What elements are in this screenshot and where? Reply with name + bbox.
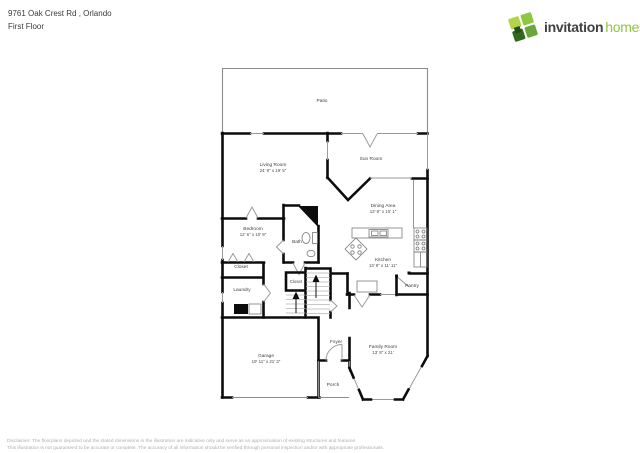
disclaimer: Disclaimer: The floorplans depicted and … (7, 438, 384, 452)
room-label-laundry: Laundry (233, 287, 251, 293)
room-dims-living-room: 24' 8" x 19' 5" (260, 168, 287, 173)
room-dims-family-room: 13' 8" x 21' (372, 350, 393, 355)
bedroom-bath-walls (222, 205, 319, 318)
kitchen-fixtures (345, 180, 427, 292)
interior-walls-upper (328, 133, 428, 200)
room-label-closet-small: Closet (290, 279, 303, 284)
room-label-pantry: Pantry (405, 283, 419, 289)
room-dims-kitchen: 13' 9" x 11' 11" (369, 263, 398, 268)
room-dims-garage: 19' 11" x 21' 3" (252, 359, 281, 364)
room-label-porch: Porch (327, 382, 340, 388)
stairs-area (286, 268, 348, 318)
floor-plan: Patio Living Room 24' 8" x 19' 5" Sun Ro… (0, 0, 640, 453)
bath-fixtures (302, 233, 318, 257)
room-label-bath: Bath (292, 239, 302, 245)
room-label-closet: Closet (234, 264, 248, 270)
room-dims-bedroom: 12' 6" x 10' 9" (240, 232, 267, 237)
room-label-foyer: Foyer (330, 339, 343, 345)
porch-outline (319, 361, 350, 398)
floorplan-page: 9761 Oak Crest Rd , Orlando First Floor … (0, 0, 640, 453)
room-label-sun-room: Sun Room (360, 156, 383, 162)
disclaimer-line2: This illustration is not guaranteed to b… (7, 445, 384, 452)
utility-units (234, 304, 261, 314)
patio-door-swing (363, 134, 377, 147)
disclaimer-line1: Disclaimer: The floorplans depicted and … (7, 438, 384, 445)
front-door-swing (326, 345, 342, 361)
room-dims-dining-area: 13' 9" x 10' 1" (370, 209, 397, 214)
room-label-patio: Patio (317, 98, 328, 104)
